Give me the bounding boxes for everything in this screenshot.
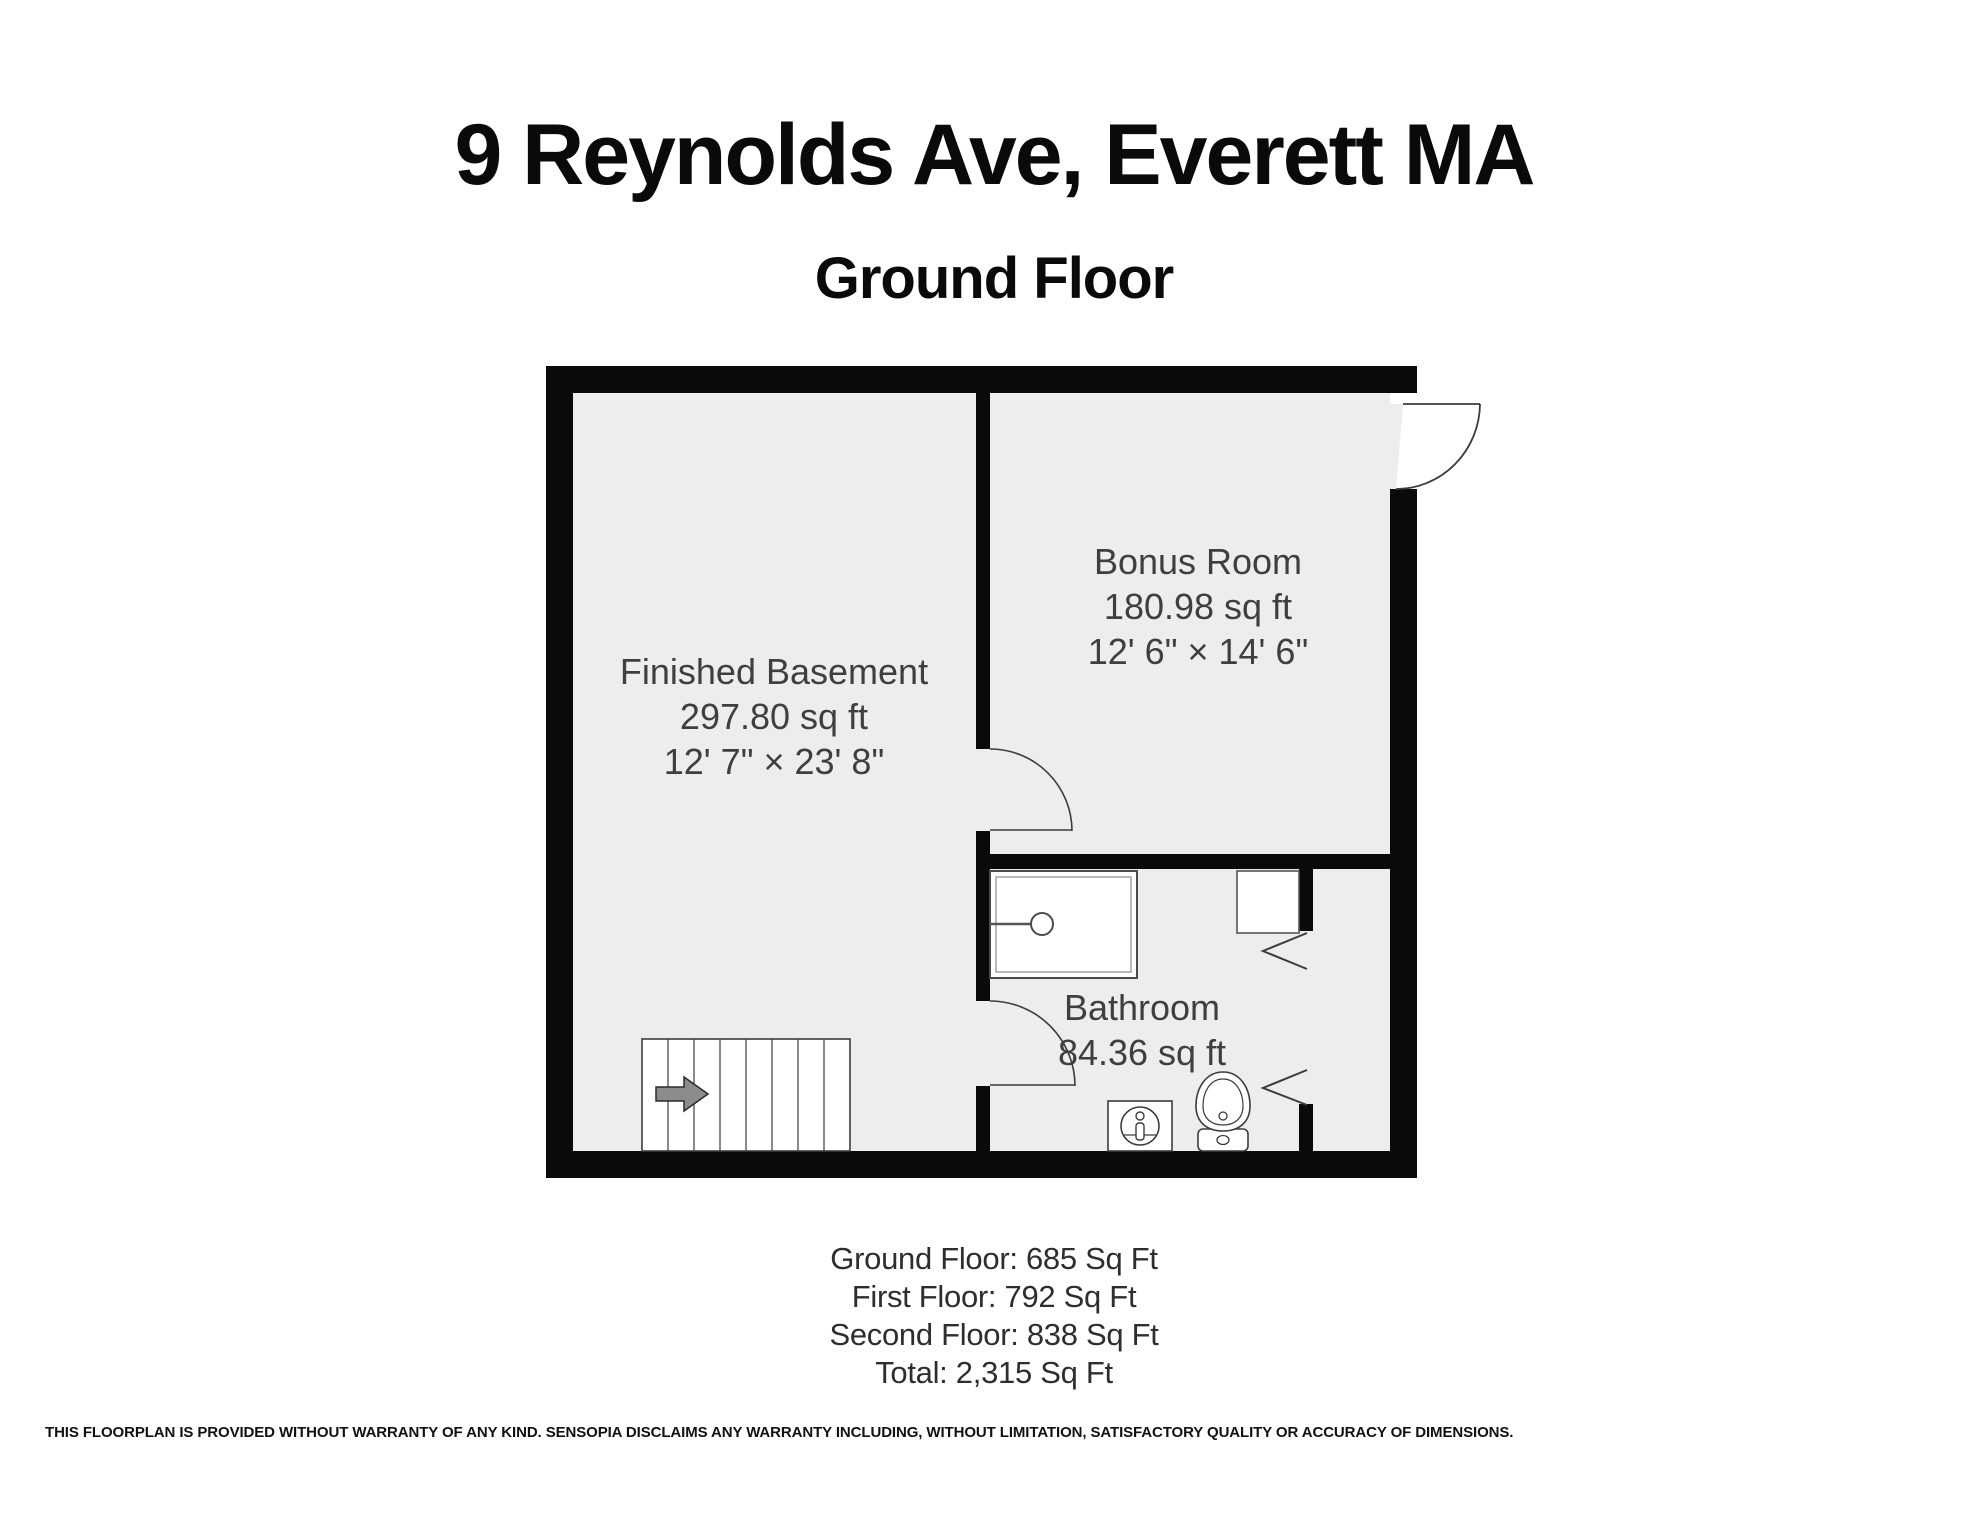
floor-subtitle: Ground Floor xyxy=(0,250,1988,308)
page-title: 9 Reynolds Ave, Everett MA xyxy=(0,112,1988,198)
room-name: Bonus Room xyxy=(1094,541,1302,582)
door-swing-exterior-fill xyxy=(1396,404,1480,489)
wall-left xyxy=(546,366,573,1178)
wall-bottom xyxy=(546,1151,1417,1178)
room-area: 84.36 sq ft xyxy=(1058,1032,1226,1073)
wall-closet-upper xyxy=(1299,869,1313,931)
wall-top xyxy=(546,366,1417,393)
shower-icon xyxy=(990,871,1137,978)
room-name: Bathroom xyxy=(1064,987,1220,1028)
area-summary-line-second: Second Floor: 838 Sq Ft xyxy=(0,1316,1988,1354)
floorplan-page: 9 Reynolds Ave, Everett MA Ground Floor xyxy=(0,0,1988,1536)
toilet-icon xyxy=(1196,1072,1250,1151)
area-summary: Ground Floor: 685 Sq Ft First Floor: 792… xyxy=(0,1240,1988,1392)
sink-icon xyxy=(1108,1101,1172,1151)
area-summary-line-total: Total: 2,315 Sq Ft xyxy=(0,1354,1988,1392)
room-dimensions: 12' 7" × 23' 8" xyxy=(664,741,884,782)
area-summary-line-first: First Floor: 792 Sq Ft xyxy=(0,1278,1988,1316)
area-summary-line-ground: Ground Floor: 685 Sq Ft xyxy=(0,1240,1988,1278)
wall-bathroom-divider xyxy=(976,854,1417,869)
floorplan-drawing: Finished Basement 297.80 sq ft 12' 7" × … xyxy=(546,366,1486,1178)
wall-center-lower xyxy=(976,1086,990,1151)
wall-center-upper xyxy=(976,393,990,749)
room-area: 297.80 sq ft xyxy=(680,696,868,737)
wall-closet-lower xyxy=(1299,1104,1313,1151)
wall-right xyxy=(1390,489,1417,1178)
room-area: 180.98 sq ft xyxy=(1104,586,1292,627)
disclaimer-text: THIS FLOORPLAN IS PROVIDED WITHOUT WARRA… xyxy=(45,1424,1545,1442)
room-dimensions: 12' 6" × 14' 6" xyxy=(1088,631,1308,672)
cabinet-icon xyxy=(1237,871,1299,933)
room-label-bonus-room: Bonus Room 180.98 sq ft 12' 6" × 14' 6" xyxy=(1088,541,1308,672)
stairs xyxy=(642,1039,850,1151)
room-name: Finished Basement xyxy=(620,651,928,692)
